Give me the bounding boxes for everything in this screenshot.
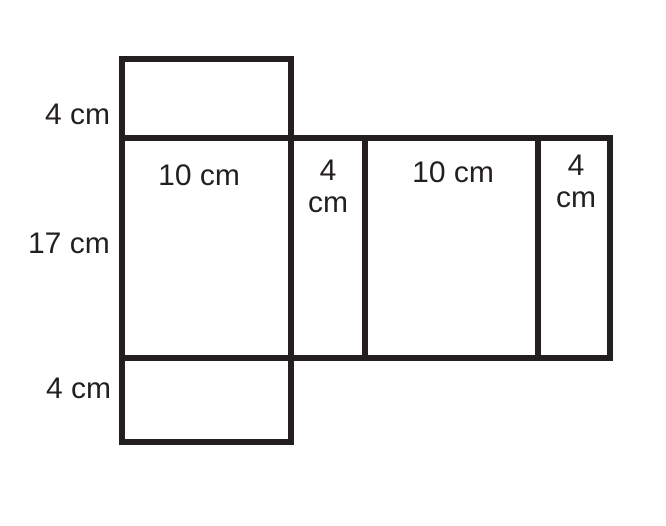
prism-net-diagram: 4 cm 17 cm 4 cm 10 cm 4 cm 10 cm 4 cm <box>0 0 666 526</box>
right-strip-width-line1: 4 <box>556 150 596 182</box>
left-strip-width-label: 4 cm <box>308 155 348 219</box>
bottom-flap-height-label: 4 cm <box>46 373 111 405</box>
left-strip-width-line2: cm <box>308 187 348 219</box>
right-strip-width-label: 4 cm <box>556 150 596 214</box>
right-strip-width-line2: cm <box>556 182 596 214</box>
body-height-label: 17 cm <box>28 228 110 260</box>
top-flap-rect <box>119 56 294 141</box>
left-face-width-label: 10 cm <box>158 160 240 192</box>
right-face-width-label: 10 cm <box>412 157 494 189</box>
left-strip-width-line1: 4 <box>308 155 348 187</box>
top-flap-height-label: 4 cm <box>45 99 110 131</box>
bottom-flap-rect <box>119 355 294 445</box>
